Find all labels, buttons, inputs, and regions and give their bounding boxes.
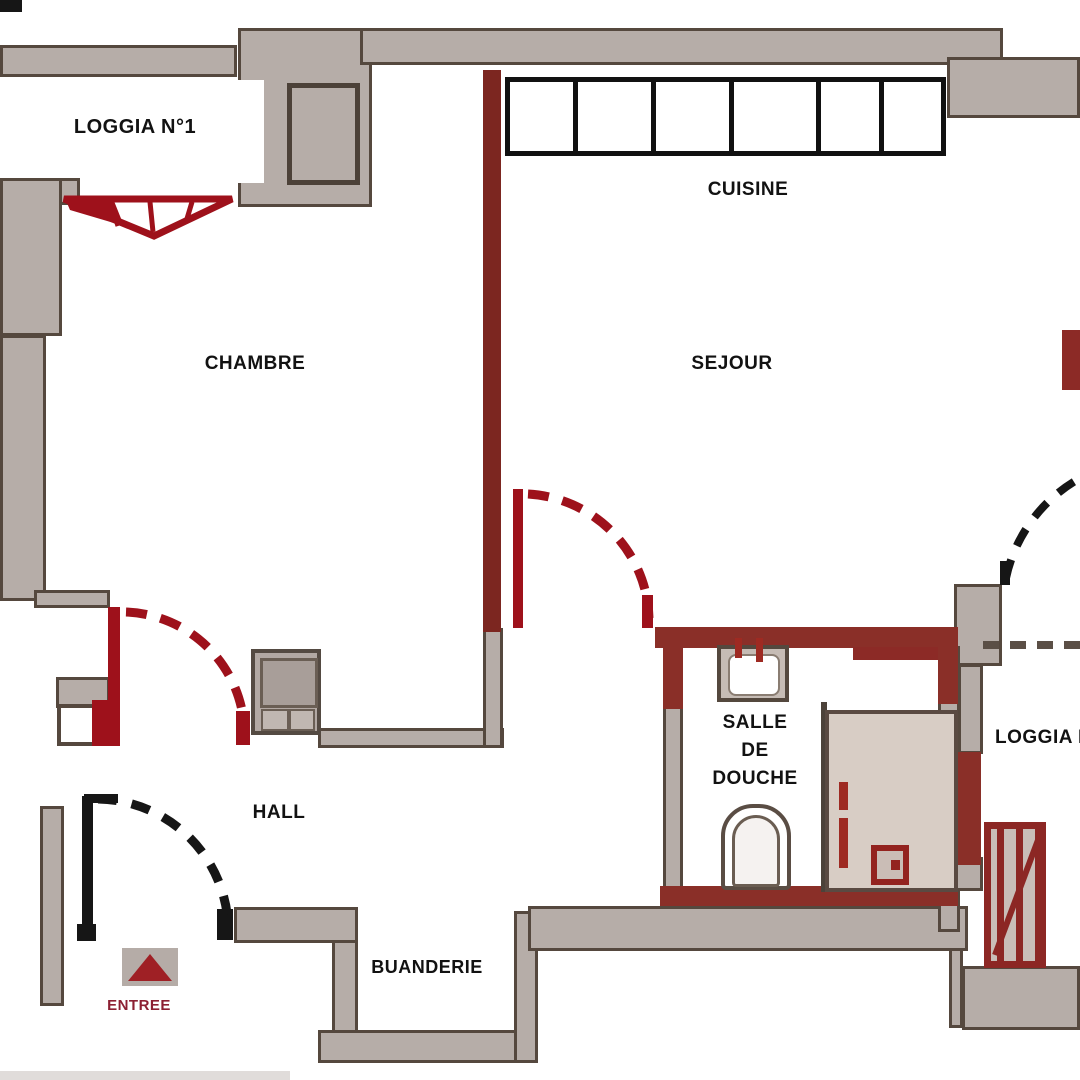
label-loggia2: LOGGIA N (995, 727, 1080, 749)
wall-pillar-notch (238, 80, 264, 183)
wall-loggia2-west-red (958, 752, 981, 865)
wall-sejour-east-pillar (954, 584, 1002, 666)
sejour-door-stub (642, 595, 653, 628)
wall-chambre-south (318, 728, 504, 748)
kitchen-counter-cell (578, 82, 656, 151)
wall-douche-east-red (938, 646, 958, 704)
hall-cabinet-drawer-right (289, 709, 315, 731)
label-sejour: SEJOUR (684, 353, 780, 375)
kitchen-counter-cell (821, 82, 884, 151)
entry-marker-block (122, 948, 178, 986)
wall-loggia1-north (0, 45, 237, 77)
chambre-door-arc (126, 612, 243, 716)
wall-douche-west-upper (663, 627, 683, 709)
label-chambre: CHAMBRE (197, 353, 313, 375)
chambre-door-stub (236, 711, 250, 745)
wall-douche-west-lower (663, 705, 683, 893)
wall-sejour-douche (655, 627, 958, 648)
hall-cabinet (251, 649, 321, 735)
shower-door-tick-1 (839, 782, 848, 810)
label-salle-line2: DE (705, 740, 805, 762)
kitchen-counter (505, 77, 946, 156)
wall-hall-south-left (234, 907, 358, 943)
faucet-tick-1 (735, 638, 742, 658)
entry-door-arc (98, 799, 228, 923)
label-salle-line1: SALLE (705, 712, 805, 734)
label-cuisine: CUISINE (698, 179, 798, 201)
wall-below-pillar (958, 664, 983, 754)
wall-buanderie-south (318, 1030, 528, 1063)
kitchen-counter-cell (510, 82, 578, 151)
loggia1-window (64, 196, 232, 236)
shower-drain (871, 845, 909, 885)
entry-door-leaf (82, 796, 93, 934)
label-buanderie: BUANDERIE (367, 957, 487, 978)
hall-cabinet-drawer-left (261, 709, 289, 731)
wall-hall-west (40, 806, 64, 1006)
loggia2-door-arc (1006, 462, 1080, 578)
kitchen-counter-cell (734, 82, 820, 151)
faucet-tick-2 (756, 638, 763, 662)
wall-top-left-corner-mark (0, 0, 22, 12)
label-entree: ENTREE (106, 997, 172, 1014)
wall-north (360, 28, 1003, 65)
entry-door-cap-bottom (77, 924, 96, 941)
entry-door-stub (217, 909, 233, 940)
sejour-door-leaf (513, 489, 523, 628)
entry-arrow-icon (128, 954, 172, 981)
wall-buanderie-west (332, 940, 358, 1036)
entry-door-cap-top (84, 794, 118, 803)
floor-plan: LOGGIA N°1 CUISINE CHAMBRE SEJOUR SALLE … (0, 0, 1080, 1080)
wall-chambre-sejour (483, 70, 501, 632)
wall-west-column (0, 335, 46, 601)
wall-west-stub (34, 590, 110, 608)
duct-shaft (287, 83, 360, 185)
label-loggia1: LOGGIA N°1 (55, 116, 215, 139)
shelf-douche (853, 647, 938, 660)
wall-north-east-block (947, 57, 1080, 118)
kitchen-counter-cell (884, 82, 941, 151)
wall-west-upper (0, 178, 62, 336)
radiator-sejour-east-edge (1062, 330, 1080, 390)
loggia2-door-stub (1000, 561, 1010, 585)
sejour-door-arc (528, 494, 649, 618)
toilet (721, 804, 791, 890)
shower-door-tick-2 (839, 818, 848, 868)
toilet-bowl (732, 815, 780, 887)
wall-west-mid-frame (57, 704, 97, 746)
sink (717, 645, 789, 702)
chambre-door-block (92, 700, 120, 746)
kitchen-counter-cell (656, 82, 735, 151)
label-hall: HALL (248, 802, 310, 824)
label-salle-line3: DOUCHE (705, 768, 805, 790)
scan-edge-line (0, 1071, 290, 1080)
wall-loggia2-south (962, 966, 1080, 1030)
sink-basin (728, 654, 780, 696)
wall-chambre-east-lower (483, 628, 503, 748)
hall-cabinet-top (260, 658, 318, 708)
wall-loggia2-south-v (949, 948, 963, 1028)
wall-south-main (528, 906, 968, 951)
radiator-loggia2 (984, 822, 1046, 968)
loggia2-threshold-dashes (983, 641, 1080, 649)
shower-drain-dot (891, 860, 900, 870)
